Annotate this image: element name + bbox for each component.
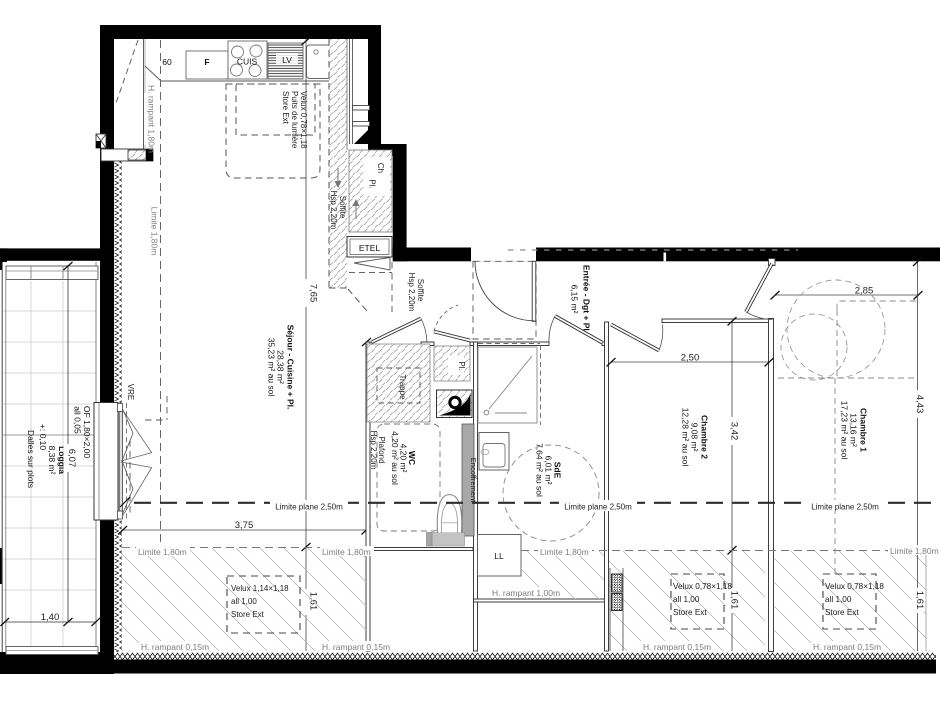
svg-text:35,23 m² au sol: 35,23 m² au sol bbox=[267, 338, 277, 397]
svg-text:Chambre 2: Chambre 2 bbox=[700, 415, 710, 459]
svg-text:ETEL: ETEL bbox=[359, 243, 381, 253]
svg-text:1,61: 1,61 bbox=[729, 591, 740, 610]
svg-text:7,65: 7,65 bbox=[308, 284, 319, 303]
svg-text:4,43: 4,43 bbox=[914, 395, 925, 414]
svg-text:+: 0,10: +: 0,10 bbox=[38, 424, 48, 451]
svg-text:Entrée - Dgt + Pl.: Entrée - Dgt + Pl. bbox=[582, 265, 592, 333]
svg-text:1,61: 1,61 bbox=[914, 591, 925, 610]
svg-text:17,23 m² au sol: 17,23 m² au sol bbox=[840, 401, 850, 460]
svg-text:1,40: 1,40 bbox=[41, 612, 60, 623]
svg-text:LL: LL bbox=[494, 551, 504, 561]
svg-text:Limite 1,80m: Limite 1,80m bbox=[322, 547, 371, 557]
svg-text:Limite 1,80m: Limite 1,80m bbox=[138, 547, 187, 557]
svg-text:Trappe: Trappe bbox=[398, 374, 407, 400]
svg-text:6,07: 6,07 bbox=[66, 449, 77, 468]
svg-text:Pl.: Pl. bbox=[368, 179, 377, 188]
svg-text:OF 1,80×2,00: OF 1,80×2,00 bbox=[82, 406, 92, 458]
svg-text:60: 60 bbox=[162, 57, 172, 67]
svg-text:Velux 0,78×1,18: Velux 0,78×1,18 bbox=[825, 582, 884, 591]
svg-text:all 1,00: all 1,00 bbox=[231, 597, 257, 606]
svg-text:Hsp 2,20m: Hsp 2,20m bbox=[369, 431, 378, 470]
svg-text:H. rampant 0,15m: H. rampant 0,15m bbox=[643, 642, 711, 652]
svg-text:all 1,00: all 1,00 bbox=[673, 595, 700, 604]
svg-text:Limite plane 2,50m: Limite plane 2,50m bbox=[275, 503, 343, 512]
svg-text:Hsp 2,20m: Hsp 2,20m bbox=[329, 191, 338, 230]
svg-text:12,28 m² au sol: 12,28 m² au sol bbox=[681, 408, 691, 467]
svg-text:Limite plane 2,50m: Limite plane 2,50m bbox=[811, 503, 879, 512]
svg-text:H. rampant 0,15m: H. rampant 0,15m bbox=[141, 642, 209, 652]
svg-text:2,85: 2,85 bbox=[855, 286, 874, 297]
svg-text:4,20 m² au sol: 4,20 m² au sol bbox=[390, 431, 400, 485]
svg-text:Dalles sur plots: Dalles sur plots bbox=[26, 430, 36, 488]
svg-text:Velux 0,78×1,18: Velux 0,78×1,18 bbox=[673, 582, 732, 591]
svg-text:Séjour - Cuisine + Pl.: Séjour - Cuisine + Pl. bbox=[286, 325, 296, 410]
svg-text:H. rampant 0,15m: H. rampant 0,15m bbox=[813, 642, 881, 652]
svg-text:Soffite: Soffite bbox=[338, 196, 347, 219]
svg-text:H. rampant 0,15m: H. rampant 0,15m bbox=[322, 642, 390, 652]
svg-text:Chambre 1: Chambre 1 bbox=[859, 408, 869, 452]
svg-text:CUIS: CUIS bbox=[237, 57, 258, 67]
svg-text:Limite 1,80m: Limite 1,80m bbox=[150, 207, 160, 256]
svg-text:Ch: Ch bbox=[376, 163, 385, 173]
svg-text:6,15 m²: 6,15 m² bbox=[570, 285, 580, 314]
svg-text:7,64 m² au sol: 7,64 m² au sol bbox=[535, 443, 545, 497]
svg-text:Store Ext: Store Ext bbox=[825, 608, 859, 617]
svg-text:Hsp 2,20m: Hsp 2,20m bbox=[407, 273, 416, 312]
svg-text:Pl.: Pl. bbox=[457, 361, 466, 370]
svg-text:F: F bbox=[204, 57, 209, 67]
svg-text:Store Ext: Store Ext bbox=[231, 610, 265, 619]
svg-text:all 1,00: all 1,00 bbox=[825, 595, 852, 604]
svg-text:Soffite: Soffite bbox=[416, 279, 425, 302]
svg-text:3,42: 3,42 bbox=[729, 422, 740, 441]
svg-text:Limite 1,80m: Limite 1,80m bbox=[890, 546, 939, 556]
svg-text:all 0,05: all 0,05 bbox=[73, 406, 83, 434]
svg-text:Limite plane 2,50m: Limite plane 2,50m bbox=[564, 503, 632, 512]
svg-text:LV: LV bbox=[282, 55, 292, 65]
svg-text:H. rampant 1,00m: H. rampant 1,00m bbox=[492, 588, 560, 598]
svg-text:VRE: VRE bbox=[126, 384, 135, 400]
svg-text:2,50: 2,50 bbox=[681, 353, 700, 364]
svg-text:Store Ext: Store Ext bbox=[281, 91, 290, 125]
svg-text:Store Ext: Store Ext bbox=[673, 608, 707, 617]
svg-text:H. rampant 1,80m: H. rampant 1,80m bbox=[147, 85, 157, 153]
svg-text:Puits de lumière: Puits de lumière bbox=[290, 91, 299, 149]
svg-text:Velux 1,14×1,18: Velux 1,14×1,18 bbox=[231, 584, 289, 593]
svg-text:3,75: 3,75 bbox=[235, 520, 254, 531]
svg-text:Encoffrement: Encoffrement bbox=[469, 458, 478, 503]
svg-text:Limite 1,80m: Limite 1,80m bbox=[540, 547, 589, 557]
svg-text:Velux 0,78×1,18: Velux 0,78×1,18 bbox=[299, 91, 308, 149]
